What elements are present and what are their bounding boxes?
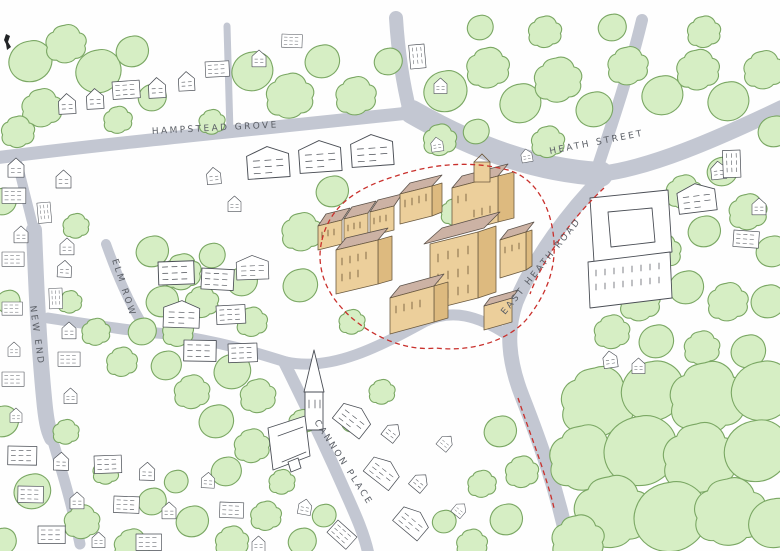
building xyxy=(733,230,760,248)
tree xyxy=(63,213,89,238)
tree xyxy=(234,429,270,463)
tree xyxy=(687,16,720,48)
tree xyxy=(312,504,336,527)
tree xyxy=(484,416,516,447)
building xyxy=(2,188,26,203)
building xyxy=(381,420,404,443)
tree xyxy=(107,347,138,376)
tree xyxy=(639,325,674,358)
tree xyxy=(266,73,313,118)
tree xyxy=(708,283,748,321)
tree xyxy=(594,315,630,349)
tree xyxy=(116,36,148,67)
building xyxy=(2,372,24,386)
tree xyxy=(490,504,522,535)
tree xyxy=(339,309,365,334)
tree xyxy=(463,119,489,144)
tree xyxy=(534,57,581,102)
junction xyxy=(587,161,613,187)
building xyxy=(57,260,72,278)
tree xyxy=(46,25,86,63)
building xyxy=(236,255,269,280)
building xyxy=(408,470,431,493)
building xyxy=(228,196,241,212)
tree xyxy=(176,506,208,537)
tree xyxy=(9,41,52,82)
building xyxy=(178,71,195,91)
building xyxy=(113,496,139,513)
tree xyxy=(240,379,276,413)
road-lane-top xyxy=(227,26,230,132)
building xyxy=(8,342,20,356)
tree xyxy=(756,236,780,267)
tree xyxy=(505,456,538,488)
tree xyxy=(199,243,225,268)
building xyxy=(252,536,265,551)
building xyxy=(148,77,166,98)
tree xyxy=(608,47,648,85)
tree xyxy=(104,106,132,133)
tree xyxy=(199,405,234,438)
building xyxy=(206,167,221,185)
tree xyxy=(215,526,248,551)
building xyxy=(37,202,52,223)
building xyxy=(64,388,77,404)
tree xyxy=(677,49,720,90)
building xyxy=(139,462,155,481)
building xyxy=(219,502,243,518)
building xyxy=(18,486,44,503)
tree xyxy=(283,269,318,302)
tree xyxy=(0,528,16,551)
tree xyxy=(467,15,493,40)
building xyxy=(216,304,246,324)
tree xyxy=(457,529,488,551)
building xyxy=(38,526,65,544)
tree xyxy=(724,420,780,482)
building xyxy=(436,432,456,452)
building xyxy=(228,343,258,363)
building xyxy=(632,358,645,374)
sketch-map: HAMPSTEAD GROVE HEATH STREET EAST HEATH … xyxy=(0,0,780,551)
tree xyxy=(751,285,780,318)
site-building xyxy=(400,175,442,224)
building xyxy=(298,139,342,173)
tree xyxy=(151,351,181,380)
tree xyxy=(467,47,510,88)
building xyxy=(58,352,80,366)
building xyxy=(201,268,234,291)
tree xyxy=(211,457,241,486)
building xyxy=(60,238,74,255)
tree xyxy=(708,82,749,121)
building xyxy=(158,261,194,285)
building xyxy=(14,226,28,243)
junction xyxy=(405,102,425,122)
building xyxy=(184,340,217,361)
tree xyxy=(669,271,704,304)
building xyxy=(205,61,230,78)
street-label-elm-row: ELM ROW xyxy=(109,258,137,319)
building xyxy=(56,170,71,188)
tree xyxy=(744,51,780,89)
tree xyxy=(468,470,496,497)
scan-mark xyxy=(4,34,11,50)
tree xyxy=(305,45,340,78)
mansion-block xyxy=(588,190,672,308)
tree xyxy=(598,14,626,41)
building xyxy=(246,145,290,179)
building xyxy=(332,398,374,439)
tree xyxy=(251,501,282,530)
tree xyxy=(432,510,456,533)
building xyxy=(282,34,303,48)
tree xyxy=(336,77,376,115)
tree xyxy=(128,318,156,345)
building xyxy=(350,133,394,167)
building xyxy=(363,452,403,491)
building xyxy=(94,455,122,474)
tree xyxy=(684,331,720,365)
building xyxy=(393,502,433,541)
tree xyxy=(688,216,720,247)
building xyxy=(8,446,37,465)
building xyxy=(722,150,741,178)
building xyxy=(136,534,162,551)
tree xyxy=(576,92,613,127)
tree xyxy=(528,16,561,48)
tree xyxy=(288,528,316,551)
building xyxy=(297,498,313,516)
building xyxy=(49,288,63,309)
tree xyxy=(369,379,395,404)
tree xyxy=(174,375,210,409)
building xyxy=(2,252,24,266)
building xyxy=(58,93,76,114)
tree xyxy=(164,470,188,493)
tree xyxy=(642,76,683,115)
tree xyxy=(731,361,780,421)
building xyxy=(409,44,426,69)
building xyxy=(112,80,140,99)
tree xyxy=(269,469,295,494)
building xyxy=(2,302,22,315)
tree xyxy=(282,213,322,251)
building xyxy=(602,350,618,369)
tree xyxy=(53,419,79,444)
tree xyxy=(374,48,402,75)
